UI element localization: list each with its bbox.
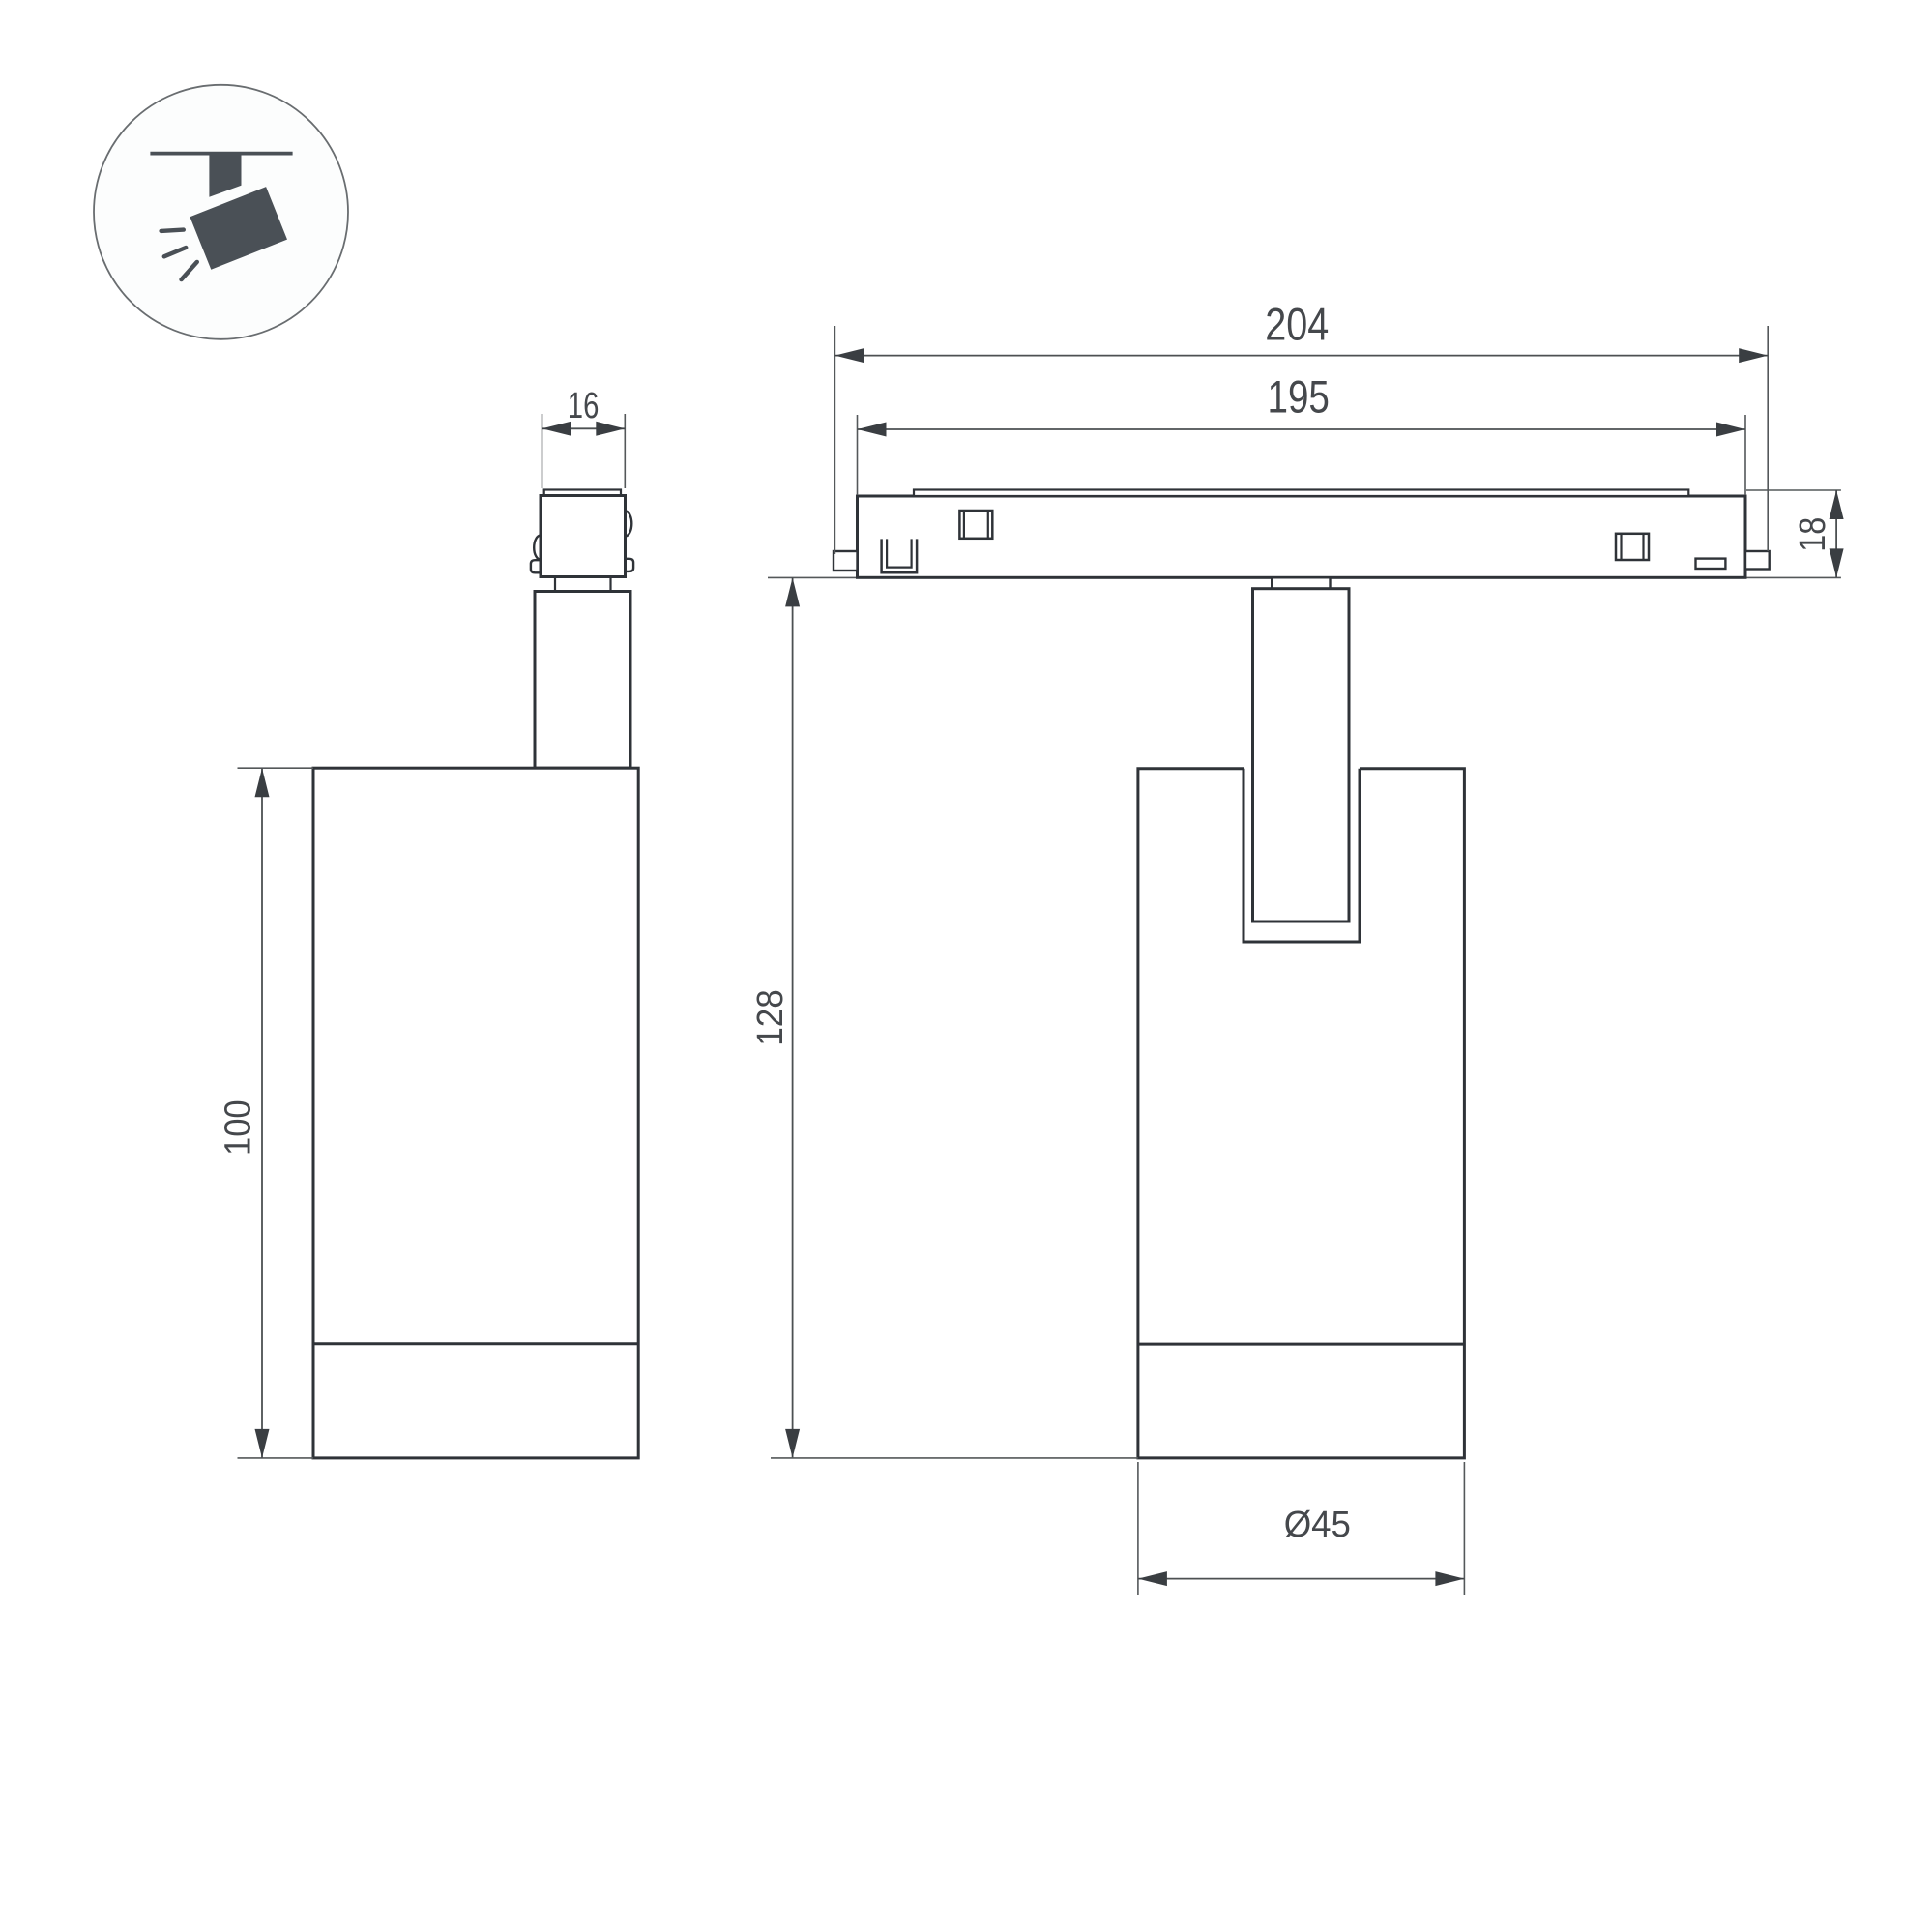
svg-text:100: 100	[219, 1099, 259, 1156]
svg-text:Ø45: Ø45	[1284, 1505, 1351, 1545]
svg-text:195: 195	[1267, 370, 1330, 422]
svg-text:16: 16	[568, 386, 600, 426]
svg-text:128: 128	[750, 989, 791, 1046]
svg-text:204: 204	[1265, 298, 1329, 349]
svg-text:18: 18	[1793, 517, 1833, 552]
